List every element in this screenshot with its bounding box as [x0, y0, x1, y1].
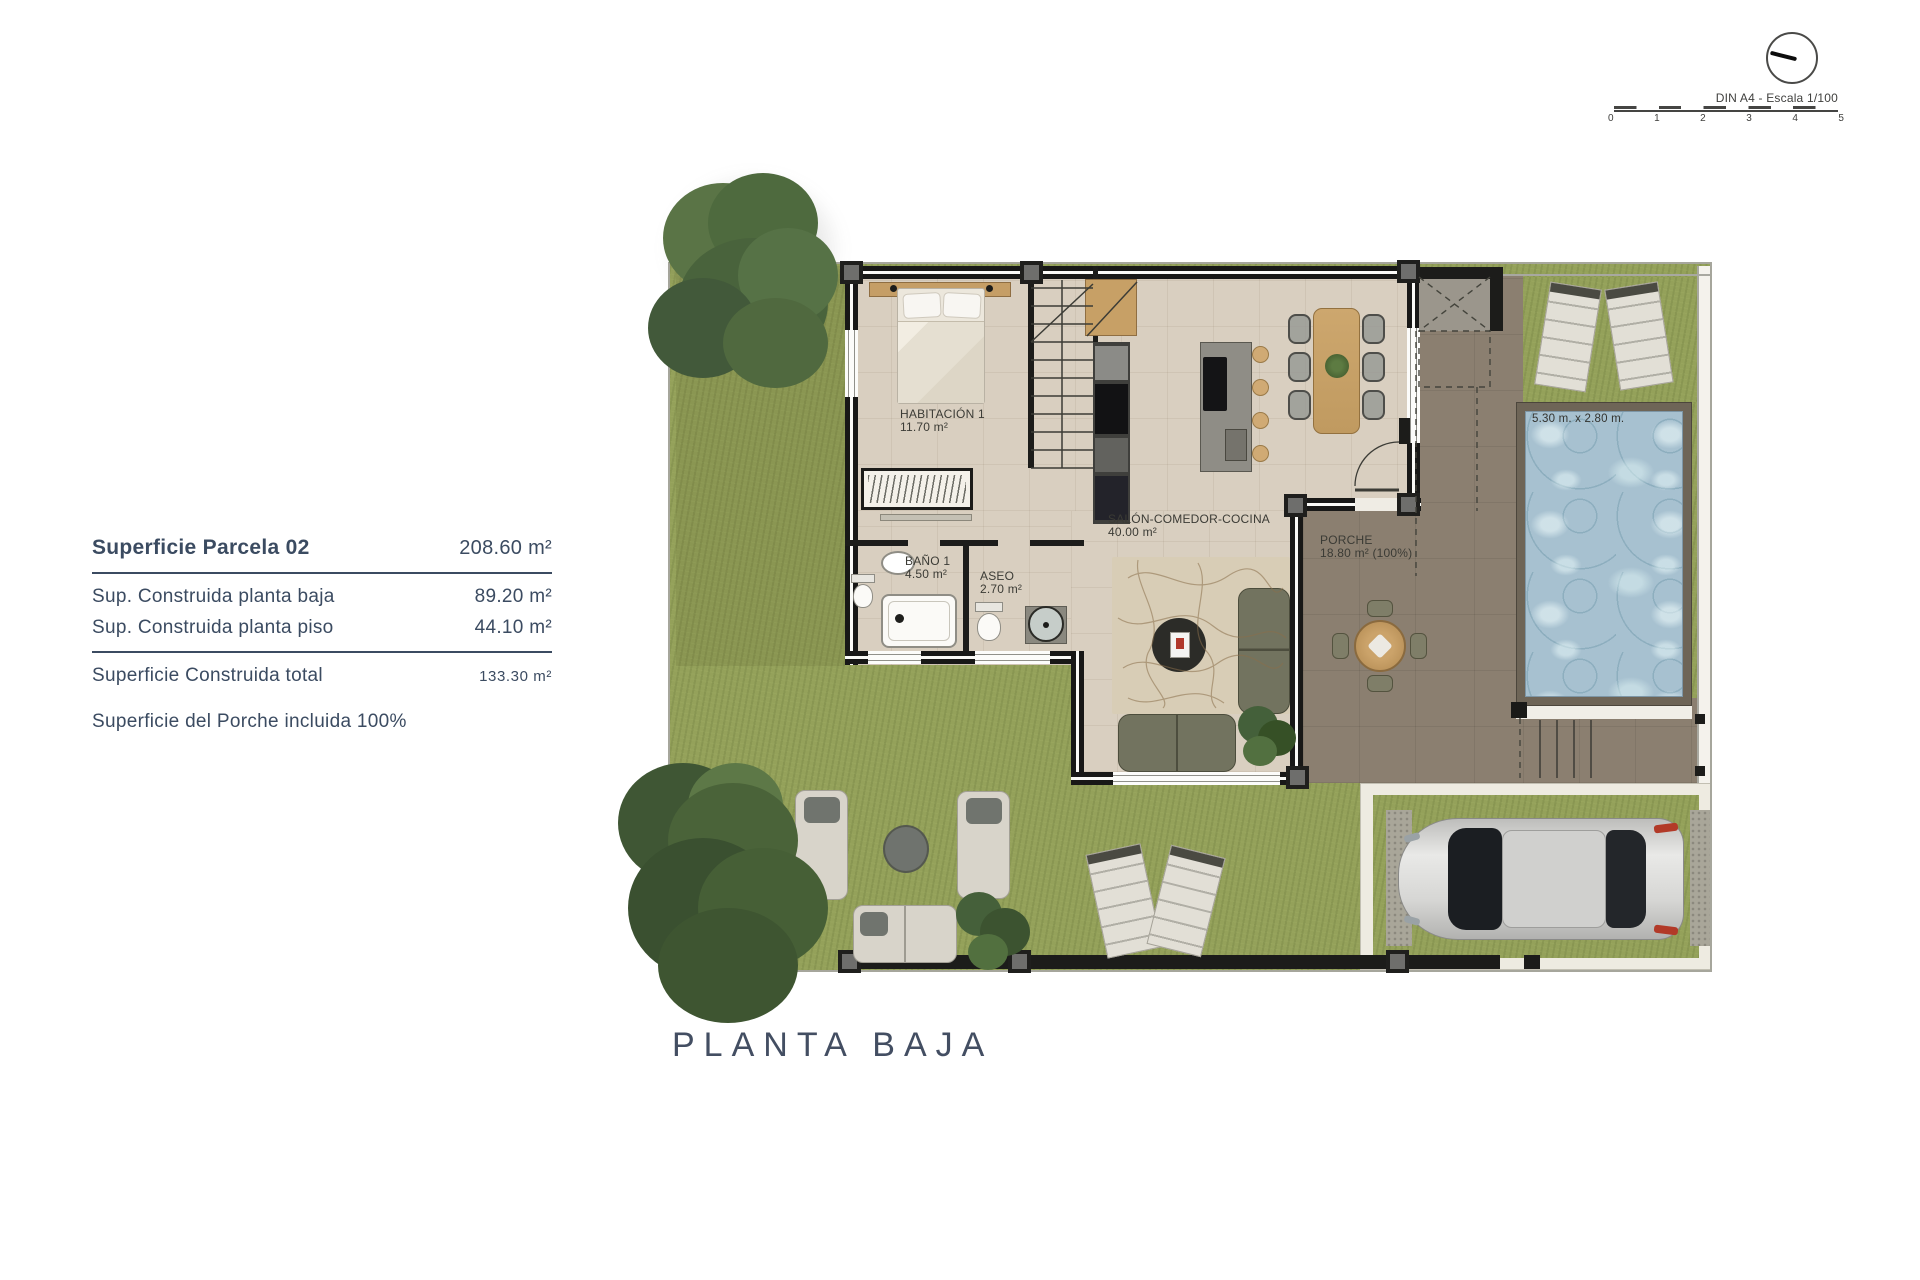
summary-title-row: Superficie Parcela 02 208.60 m² [92, 536, 552, 560]
summary-row: Sup. Construida planta baja 89.20 m² [92, 586, 552, 608]
tick-3: 3 [1746, 113, 1752, 124]
scale-label: DIN A4 - Escala 1/100 [1608, 91, 1838, 105]
plan-sheet: DIN A4 - Escala 1/100 0 1 2 3 4 5 Superf… [0, 0, 1920, 1280]
north-compass-icon [1766, 32, 1818, 84]
plan-linework [668, 258, 1714, 974]
border-post [1695, 766, 1705, 776]
door-swing-arc [1355, 442, 1399, 486]
room-label-aseo: ASEO 2.70 m² [980, 570, 1022, 596]
room-label-porche: PORCHE 18.80 m² (100%) [1320, 534, 1412, 560]
floor-plan: 5.30 m. x 2.80 m. [668, 258, 1714, 974]
landing-break-line [1087, 282, 1137, 336]
room-label-bano: BAÑO 1 4.50 m² [905, 555, 950, 581]
drawing-title: PLANTA BAJA [672, 1026, 993, 1065]
entry-hatch-x [1419, 277, 1490, 331]
area-summary-table: Superficie Parcela 02 208.60 m² Sup. Con… [92, 536, 552, 733]
rug-pattern [1138, 560, 1165, 708]
parcela-value: 208.60 m² [459, 537, 552, 560]
total-label: Superficie Construida total [92, 665, 323, 687]
summary-row: Sup. Construida planta piso 44.10 m² [92, 617, 552, 639]
divider [92, 651, 552, 653]
border-post [1695, 714, 1705, 724]
overhang-dashed-rect [1419, 331, 1490, 387]
rug-pattern [1118, 616, 1286, 638]
total-value: 133.30 m² [479, 668, 552, 685]
planta-baja-label: Sup. Construida planta baja [92, 586, 335, 608]
exterior-steps [1540, 720, 1591, 778]
room-area: 18.80 m² (100%) [1320, 547, 1412, 560]
planta-piso-value: 44.10 m² [475, 617, 552, 639]
tick-0: 0 [1608, 113, 1614, 124]
scale-ruler-ticks: 0 1 2 3 4 5 [1608, 113, 1844, 124]
room-label-salon: SALÓN-COMEDOR-COCINA 40.00 m² [1108, 513, 1270, 539]
room-area: 11.70 m² [900, 421, 985, 434]
room-area: 4.50 m² [905, 568, 950, 581]
rug-pattern [1128, 694, 1224, 703]
tick-5: 5 [1838, 113, 1844, 124]
tick-1: 1 [1654, 113, 1660, 124]
tick-4: 4 [1792, 113, 1798, 124]
scale-bar [1614, 106, 1838, 112]
planta-piso-label: Sup. Construida planta piso [92, 617, 334, 639]
rug-pattern [1128, 569, 1283, 592]
summary-total-row: Superficie Construida total 133.30 m² [92, 665, 552, 687]
porch-note: Superficie del Porche incluida 100% [92, 711, 552, 733]
room-label-habitacion: HABITACIÓN 1 11.70 m² [900, 408, 985, 434]
compass-needle [1770, 51, 1797, 61]
room-area: 2.70 m² [980, 583, 1022, 596]
room-area: 40.00 m² [1108, 526, 1270, 539]
divider [92, 572, 552, 574]
planta-baja-value: 89.20 m² [475, 586, 552, 608]
tick-2: 2 [1700, 113, 1706, 124]
parcela-label: Superficie Parcela 02 [92, 536, 310, 560]
